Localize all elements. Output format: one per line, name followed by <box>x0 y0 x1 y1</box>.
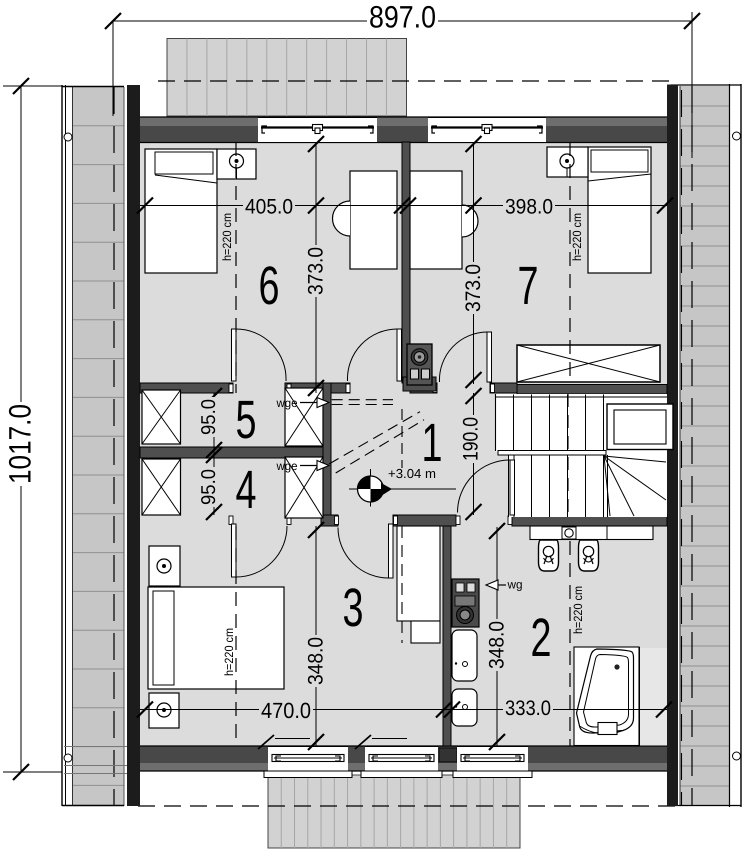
svg-text:h=220 cm: h=220 cm <box>222 628 236 676</box>
svg-text:897.0: 897.0 <box>369 0 436 35</box>
svg-text:348.0: 348.0 <box>486 621 509 669</box>
svg-text:405.0: 405.0 <box>245 196 293 219</box>
svg-text:333.0: 333.0 <box>505 697 551 720</box>
svg-text:h=220 cm: h=220 cm <box>571 586 585 634</box>
svg-text:h=220 cm: h=220 cm <box>220 213 234 261</box>
svg-text:398.0: 398.0 <box>505 196 553 219</box>
svg-text:wg: wg <box>507 578 523 592</box>
svg-text:wge: wge <box>276 396 298 410</box>
svg-text:4: 4 <box>236 460 257 520</box>
svg-text:1: 1 <box>422 413 443 473</box>
svg-text:wge: wge <box>276 459 298 473</box>
svg-text:3: 3 <box>343 578 364 638</box>
svg-text:470.0: 470.0 <box>261 698 311 723</box>
svg-text:2: 2 <box>531 608 552 668</box>
svg-text:348.0: 348.0 <box>305 637 328 685</box>
svg-text:6: 6 <box>259 256 280 316</box>
svg-text:7: 7 <box>518 256 539 316</box>
svg-text:h=220 cm: h=220 cm <box>570 213 584 261</box>
svg-text:373.0: 373.0 <box>305 247 328 295</box>
svg-text:190.0: 190.0 <box>460 417 483 461</box>
svg-text:5: 5 <box>236 390 257 450</box>
svg-text:1017.0: 1017.0 <box>3 404 38 484</box>
svg-text:95.0: 95.0 <box>198 399 220 435</box>
svg-text:95.0: 95.0 <box>198 469 220 505</box>
svg-text:373.0: 373.0 <box>462 264 485 312</box>
